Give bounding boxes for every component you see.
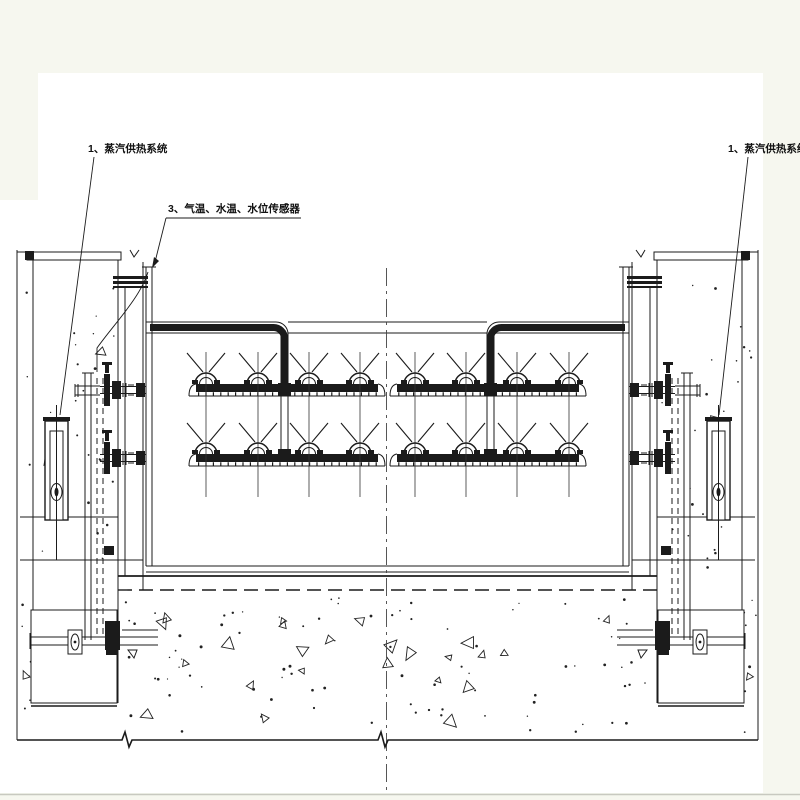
label-steam-system-right: 1、蒸汽供热系统 (728, 142, 800, 155)
paper-sheet (38, 73, 763, 793)
engineering-drawing-canvas: 1、蒸汽供热系统 3、气温、水温、水位传感器 1、蒸汽供热系统 (0, 0, 800, 800)
drawing-page: 1、蒸汽供热系统 3、气温、水温、水位传感器 1、蒸汽供热系统 (0, 0, 800, 800)
label-steam-system-left: 1、蒸汽供热系统 (88, 142, 168, 155)
paper-sheet-left (0, 200, 38, 793)
label-sensors: 3、气温、水温、水位传感器 (168, 202, 300, 215)
